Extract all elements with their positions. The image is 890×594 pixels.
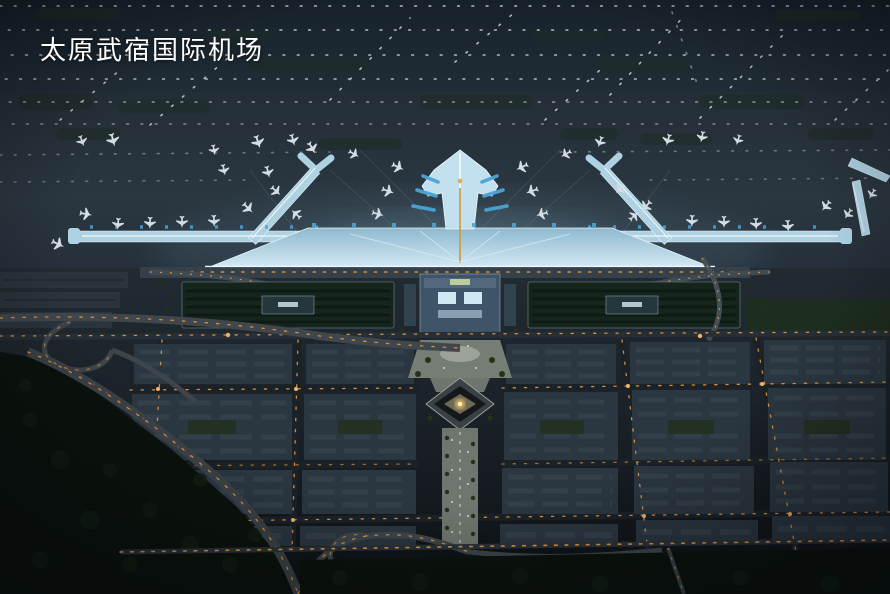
airport-name-label: 太原武宿国际机场 [40,36,264,66]
airport-aerial-rendering: 太原武宿国际机场 [0,0,890,594]
scene-graphic [0,0,890,594]
image-caption: 太原武宿国际机场 [40,30,264,67]
vignette-overlay [0,0,890,594]
